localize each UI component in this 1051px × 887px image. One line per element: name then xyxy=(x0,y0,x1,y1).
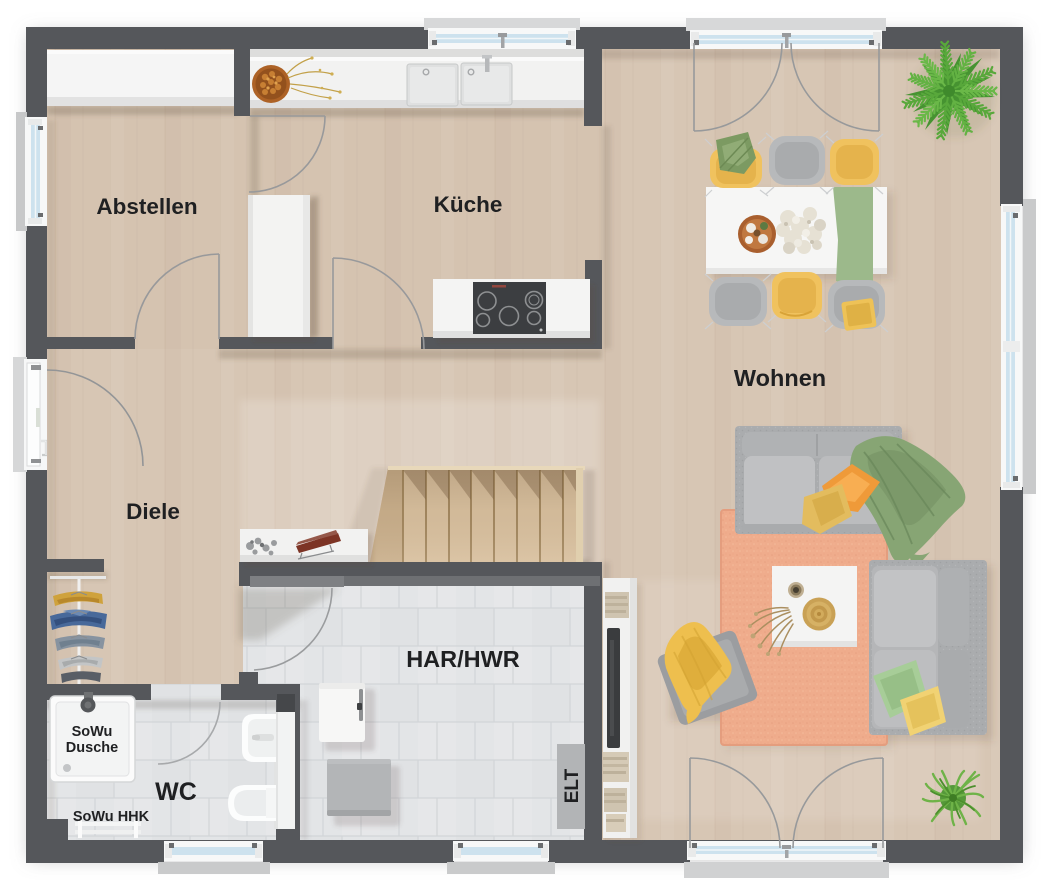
svg-text:Dusche: Dusche xyxy=(66,740,118,756)
svg-text:SoWu HHK: SoWu HHK xyxy=(73,809,150,825)
svg-text:Küche: Küche xyxy=(434,192,503,217)
svg-text:Wohnen: Wohnen xyxy=(734,365,826,391)
svg-text:ELT: ELT xyxy=(562,768,583,803)
svg-text:HAR/HWR: HAR/HWR xyxy=(406,646,520,672)
svg-text:Abstellen: Abstellen xyxy=(96,194,197,219)
svg-text:WC: WC xyxy=(155,778,197,806)
svg-text:Diele: Diele xyxy=(126,499,180,524)
svg-text:SoWu: SoWu xyxy=(72,724,113,740)
